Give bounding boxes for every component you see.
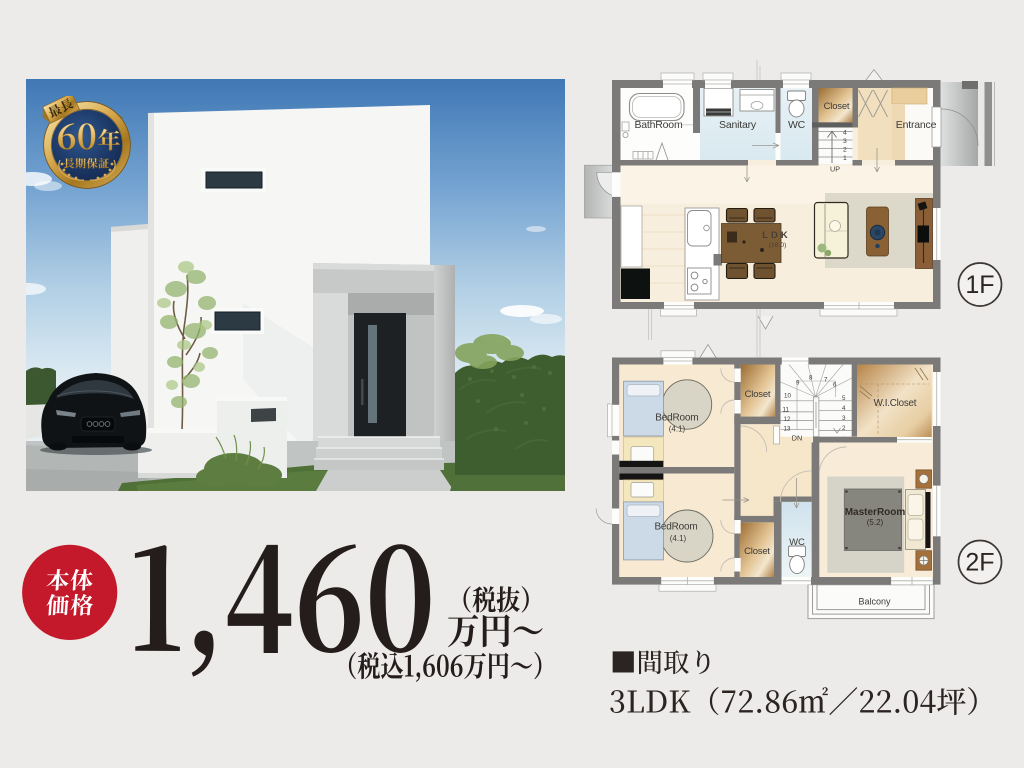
svg-text:12: 12 bbox=[784, 416, 791, 423]
svg-text:2F: 2F bbox=[965, 549, 994, 577]
svg-text:BathRoom: BathRoom bbox=[634, 119, 682, 131]
svg-text:Closet: Closet bbox=[744, 546, 770, 557]
svg-text:(5.2): (5.2) bbox=[867, 518, 884, 527]
svg-text:(4.1): (4.1) bbox=[669, 425, 686, 434]
svg-text:2: 2 bbox=[843, 147, 847, 154]
svg-text:5: 5 bbox=[842, 395, 846, 402]
svg-text:3: 3 bbox=[842, 415, 846, 422]
svg-text:BedRoom: BedRoom bbox=[655, 413, 698, 424]
svg-text:LDK: LDK bbox=[762, 230, 791, 241]
svg-text:Closet: Closet bbox=[745, 389, 771, 400]
svg-text:6: 6 bbox=[833, 382, 837, 389]
svg-text:11: 11 bbox=[783, 407, 790, 414]
svg-text:Sanitary: Sanitary bbox=[719, 119, 757, 131]
svg-text:4: 4 bbox=[842, 405, 846, 412]
svg-text:1F: 1F bbox=[965, 271, 994, 299]
svg-text:MasterRoom: MasterRoom bbox=[845, 507, 906, 518]
svg-text:4: 4 bbox=[843, 129, 847, 136]
svg-text:Closet: Closet bbox=[824, 101, 850, 112]
svg-text:DN: DN bbox=[792, 434, 802, 443]
svg-text:WC: WC bbox=[788, 119, 806, 131]
svg-text:BedRoom: BedRoom bbox=[654, 522, 697, 533]
svg-text:W.I.Closet: W.I.Closet bbox=[874, 398, 917, 409]
svg-text:8: 8 bbox=[809, 375, 813, 382]
svg-text:UP: UP bbox=[830, 165, 840, 174]
svg-text:9: 9 bbox=[796, 380, 800, 387]
svg-text:2: 2 bbox=[842, 425, 846, 432]
svg-text:3: 3 bbox=[843, 138, 847, 145]
svg-text:(4.1): (4.1) bbox=[670, 534, 687, 543]
svg-text:Balcony: Balcony bbox=[858, 596, 891, 606]
svg-text:Entrance: Entrance bbox=[896, 119, 937, 131]
svg-text:7: 7 bbox=[824, 377, 828, 384]
svg-text:1: 1 bbox=[843, 155, 847, 162]
svg-text:10: 10 bbox=[784, 393, 791, 400]
svg-text:13: 13 bbox=[784, 426, 791, 433]
svg-text:(16.0): (16.0) bbox=[769, 242, 787, 249]
